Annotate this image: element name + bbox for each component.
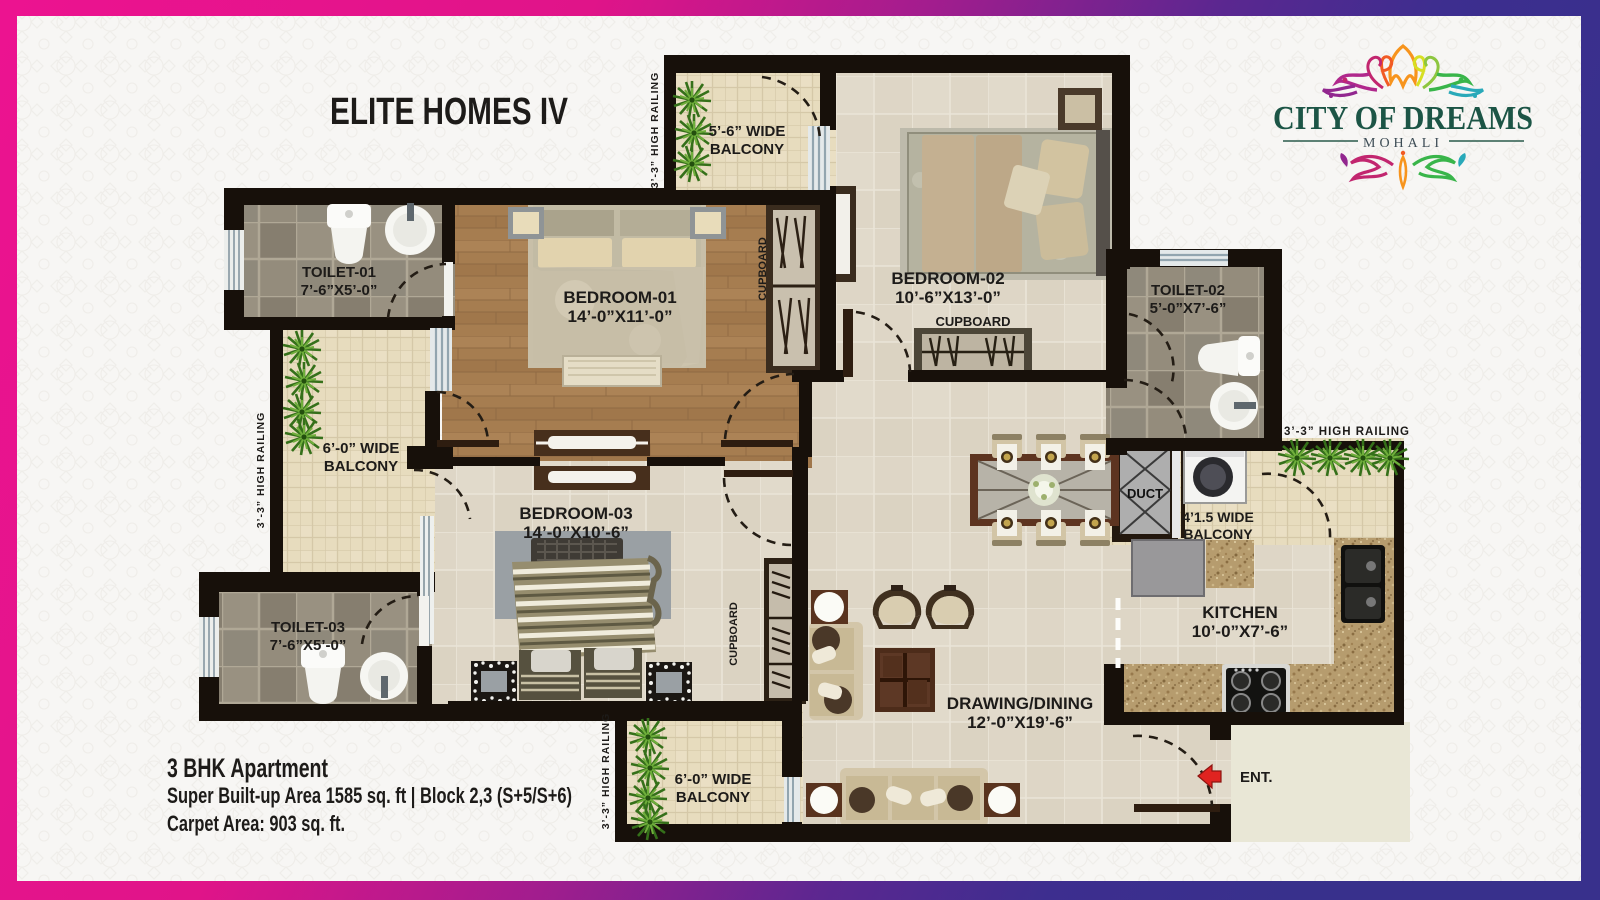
svg-text:CUPBOARD: CUPBOARD (935, 314, 1010, 329)
svg-text:DUCT: DUCT (1127, 486, 1163, 501)
svg-text:3’-3” HIGH RAILING: 3’-3” HIGH RAILING (1284, 426, 1410, 438)
svg-text:4’1.5 WIDE: 4’1.5 WIDE (1182, 509, 1254, 525)
svg-text:BALCONY: BALCONY (1183, 526, 1253, 542)
svg-text:6’-0” WIDE: 6’-0” WIDE (323, 440, 400, 457)
svg-text:Carpet Area: 903 sq. ft.: Carpet Area: 903 sq. ft. (167, 811, 345, 836)
svg-text:TOILET-03: TOILET-03 (271, 619, 345, 636)
svg-text:7’-6”X5’-0”: 7’-6”X5’-0” (301, 282, 378, 299)
svg-text:3’-3” HIGH RAILING: 3’-3” HIGH RAILING (649, 72, 661, 189)
svg-text:CITY OF DREAMS: CITY OF DREAMS (1273, 100, 1533, 137)
svg-text:DRAWING/DINING: DRAWING/DINING (947, 694, 1093, 713)
svg-text:3’-3” HIGH RAILING: 3’-3” HIGH RAILING (255, 412, 267, 529)
svg-text:CUPBOARD: CUPBOARD (728, 602, 740, 666)
svg-text:ELITE HOMES IV: ELITE HOMES IV (330, 91, 569, 133)
svg-text:3 BHK Apartment: 3 BHK Apartment (167, 753, 328, 783)
svg-text:TOILET-01: TOILET-01 (302, 264, 376, 281)
svg-text:BALCONY: BALCONY (710, 141, 784, 158)
svg-text:5’-6” WIDE: 5’-6” WIDE (709, 123, 786, 140)
svg-text:Super Built-up Area 1585 sq. f: Super Built-up Area 1585 sq. ft | Block … (167, 783, 572, 808)
svg-text:BALCONY: BALCONY (676, 789, 750, 806)
svg-text:BALCONY: BALCONY (324, 458, 398, 475)
svg-text:BEDROOM-02: BEDROOM-02 (891, 269, 1004, 288)
svg-text:CUPBOARD: CUPBOARD (757, 237, 769, 301)
svg-text:3’-3” HIGH RAILING: 3’-3” HIGH RAILING (600, 713, 612, 830)
svg-text:12’-0”X19’-6”: 12’-0”X19’-6” (967, 713, 1073, 732)
svg-text:10’-6”X13’-0”: 10’-6”X13’-0” (895, 288, 1001, 307)
svg-text:BEDROOM-03: BEDROOM-03 (519, 504, 632, 523)
svg-text:BEDROOM-01: BEDROOM-01 (563, 288, 676, 307)
svg-text:5’-0”X7’-6”: 5’-0”X7’-6” (1150, 300, 1227, 317)
svg-text:14’-0”X10’-6”: 14’-0”X10’-6” (523, 523, 629, 542)
svg-text:6’-0” WIDE: 6’-0” WIDE (675, 771, 752, 788)
svg-text:MOHALI: MOHALI (1363, 136, 1443, 151)
svg-text:KITCHEN: KITCHEN (1202, 603, 1278, 622)
svg-text:10’-0”X7’-6”: 10’-0”X7’-6” (1192, 622, 1288, 641)
svg-text:ENT.: ENT. (1240, 769, 1273, 786)
svg-text:TOILET-02: TOILET-02 (1151, 282, 1225, 299)
svg-text:7’-6”X5’-0”: 7’-6”X5’-0” (270, 637, 347, 654)
svg-text:14’-0”X11’-0”: 14’-0”X11’-0” (568, 307, 673, 326)
